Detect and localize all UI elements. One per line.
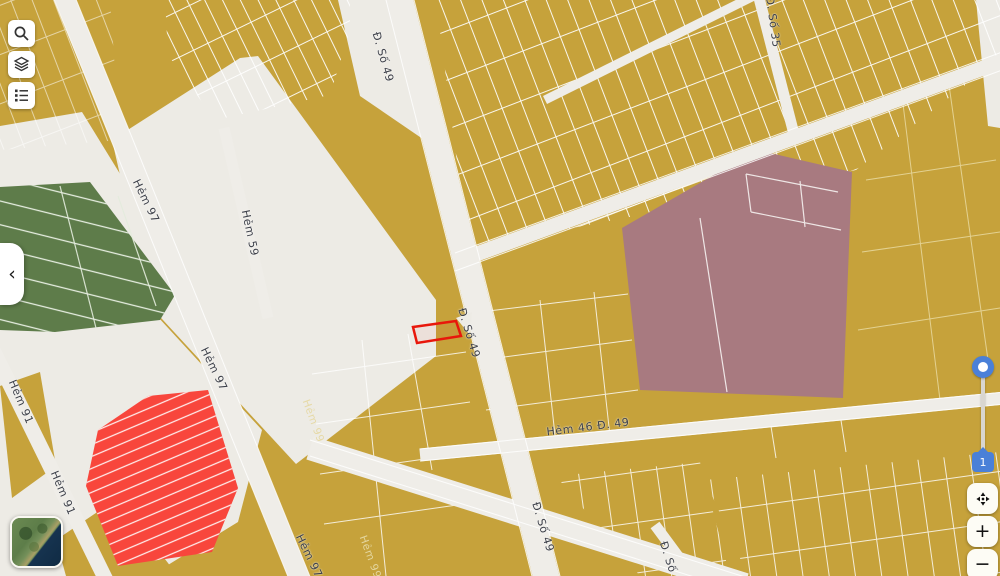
panel-collapse-button[interactable]: ‹: [0, 243, 24, 305]
chevron-left-icon: ‹: [8, 263, 16, 285]
legend-button[interactable]: [8, 82, 35, 109]
satellite-thumbnail-image: [12, 518, 61, 566]
search-button[interactable]: [8, 20, 35, 47]
layers-button[interactable]: [8, 51, 35, 78]
map-graphics: [0, 0, 1000, 576]
basemap-thumbnail-button[interactable]: [10, 516, 63, 568]
locate-button[interactable]: [967, 483, 998, 514]
level-slider-value-badge: 1: [972, 452, 994, 472]
search-icon: [13, 25, 30, 42]
level-slider-handle[interactable]: [972, 356, 994, 378]
layers-icon: [13, 56, 30, 73]
zoom-out-button[interactable]: −: [967, 549, 998, 576]
legend-list-icon: [13, 87, 30, 104]
zoom-in-button[interactable]: +: [967, 516, 998, 547]
crosshair-icon: [974, 490, 992, 508]
map-canvas[interactable]: Đ. Số 49 Đ. Số 49 Đ. Số 49 Hẻm 97 Hẻm 97…: [0, 0, 1000, 576]
